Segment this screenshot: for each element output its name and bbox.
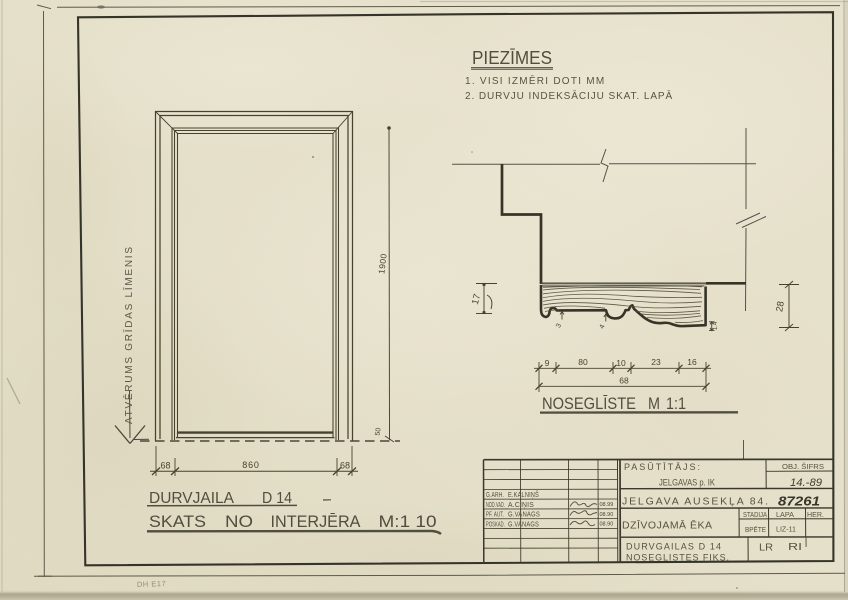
svg-text:G.ARH.: G.ARH. <box>486 490 504 499</box>
svg-text:INTERJĒRA: INTERJĒRA <box>271 513 361 531</box>
svg-text:DZĪVOJAMĀ ĒKA: DZĪVOJAMĀ ĒKA <box>622 520 712 532</box>
svg-text:68: 68 <box>619 376 629 386</box>
svg-text:1:1: 1:1 <box>666 395 686 413</box>
svg-text:9: 9 <box>545 358 550 368</box>
svg-text:LR: LR <box>759 542 773 554</box>
svg-text:D 14: D 14 <box>262 490 292 507</box>
svg-text:STADIJA: STADIJA <box>743 512 767 519</box>
svg-text:NOSEGLĪSTE: NOSEGLĪSTE <box>542 395 636 413</box>
svg-text:PIEZĪMES: PIEZĪMES <box>472 48 552 68</box>
svg-text:08.90: 08.90 <box>600 512 614 518</box>
svg-text:1. VISI IZMĒRI DOTI MM: 1. VISI IZMĒRI DOTI MM <box>465 75 605 87</box>
svg-text:68: 68 <box>340 461 350 471</box>
svg-text:POSKAD.: POSKAD. <box>486 519 505 528</box>
svg-text:87261: 87261 <box>778 494 820 509</box>
svg-text:80: 80 <box>578 357 588 367</box>
svg-text:50: 50 <box>374 427 382 436</box>
svg-text:RI: RI <box>788 541 802 553</box>
svg-text:14.-89: 14.-89 <box>790 477 822 489</box>
svg-text:A.CIŅIS: A.CIŅIS <box>508 500 534 509</box>
svg-text:OBJ. ŠIFRS: OBJ. ŠIFRS <box>782 462 824 471</box>
svg-text:LAPA: LAPA <box>776 510 794 519</box>
svg-text:860: 860 <box>242 460 259 470</box>
svg-text:G.VANAGS: G.VANAGS <box>508 519 539 528</box>
svg-text:DURVJAILA: DURVJAILA <box>149 490 235 507</box>
svg-text:G.VANAGS: G.VANAGS <box>508 510 540 519</box>
svg-text:2. DURVJU INDEKSĀCIJU SKAT.: 2. DURVJU INDEKSĀCIJU SKAT. LAPĀ <box>465 90 673 102</box>
svg-text:M: M <box>648 395 660 413</box>
svg-text:08.99: 08.99 <box>600 502 614 508</box>
svg-text:10: 10 <box>616 358 626 368</box>
svg-text:DURVGAILAS D 14: DURVGAILAS D 14 <box>626 542 721 552</box>
svg-text:68: 68 <box>160 461 170 471</box>
svg-text:E.KALNIŅŠ: E.KALNIŅŠ <box>508 490 539 499</box>
svg-text:NOD.VAD.: NOD.VAD. <box>486 500 505 509</box>
svg-text:HER.: HER. <box>807 512 824 519</box>
svg-text:DH E17: DH E17 <box>137 579 167 589</box>
svg-text:23: 23 <box>651 357 661 367</box>
svg-text:BPĒTE: BPĒTE <box>745 525 766 534</box>
svg-text:16: 16 <box>687 357 697 367</box>
svg-text:JELGAVAS p. IK: JELGAVAS p. IK <box>659 478 716 489</box>
svg-text:LIZ-11: LIZ-11 <box>776 527 796 534</box>
svg-text:NOSEGLISTES FIKS.: NOSEGLISTES FIKS. <box>626 553 729 563</box>
svg-text:PF. AUT.: PF. AUT. <box>486 510 504 519</box>
svg-text:28: 28 <box>774 300 787 312</box>
svg-text:08.90: 08.90 <box>600 522 614 528</box>
svg-text:NO: NO <box>225 513 253 531</box>
svg-text:M:1 10: M:1 10 <box>379 513 437 531</box>
svg-text:SKATS: SKATS <box>149 513 206 531</box>
svg-text:1.4: 1.4 <box>713 321 719 330</box>
svg-text:ATVĒRUMS GRĪDAS LĪMENIS: ATVĒRUMS GRĪDAS LĪMENIS <box>123 247 135 424</box>
